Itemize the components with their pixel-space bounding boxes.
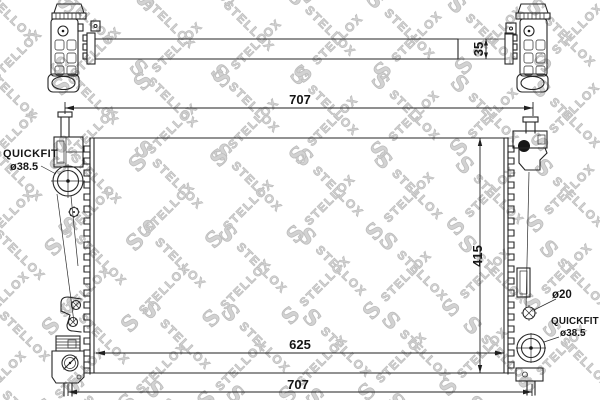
left-port-diameter-label: ø38.5 (10, 161, 38, 173)
dim-core-width: 625 (96, 337, 504, 355)
left-crimp-edge (84, 146, 90, 374)
top-view-right-bracket (505, 4, 550, 92)
top-view-core-bar (95, 39, 505, 59)
dim-thickness: 35 (471, 39, 488, 59)
drawing-canvas: SSTELLOXSSTELLOXSSTELLOXSSTELLOXSSTELLOX… (0, 0, 600, 400)
right-crimp-edge (508, 146, 514, 374)
dim-core-width-label: 625 (289, 337, 311, 352)
dim-thickness-label: 35 (471, 42, 486, 56)
top-view: 35 (48, 4, 550, 92)
dim-top-width-label: 707 (289, 92, 311, 107)
dim-height-label: 415 (470, 245, 485, 267)
right-port-diameter-label: ø38.5 (560, 328, 586, 339)
right-port-label: QUICKFIT ø38.5 (544, 316, 599, 342)
right-quickfit-label: QUICKFIT (551, 316, 599, 327)
dim-top-width: 707 (65, 92, 533, 116)
dim-height: 415 (470, 138, 485, 373)
right-small-port (521, 305, 537, 321)
left-port-label: QUICKFIT ø38.5 (3, 148, 58, 174)
left-lower-bracket (61, 297, 81, 332)
top-view-left-bracket (48, 4, 100, 92)
dim-bottom-width: 707 (68, 377, 532, 396)
right-mid-tab (517, 268, 530, 297)
radiator-drawing: 35 (0, 0, 600, 400)
right-sensor-dot (518, 140, 530, 152)
right-small-port-label: ø20 (534, 289, 572, 310)
left-quickfit-label: QUICKFIT (3, 148, 58, 160)
right-quickfit-assembly (516, 333, 546, 395)
left-tank-details (57, 194, 80, 322)
dim-bottom-width-label: 707 (287, 377, 309, 392)
